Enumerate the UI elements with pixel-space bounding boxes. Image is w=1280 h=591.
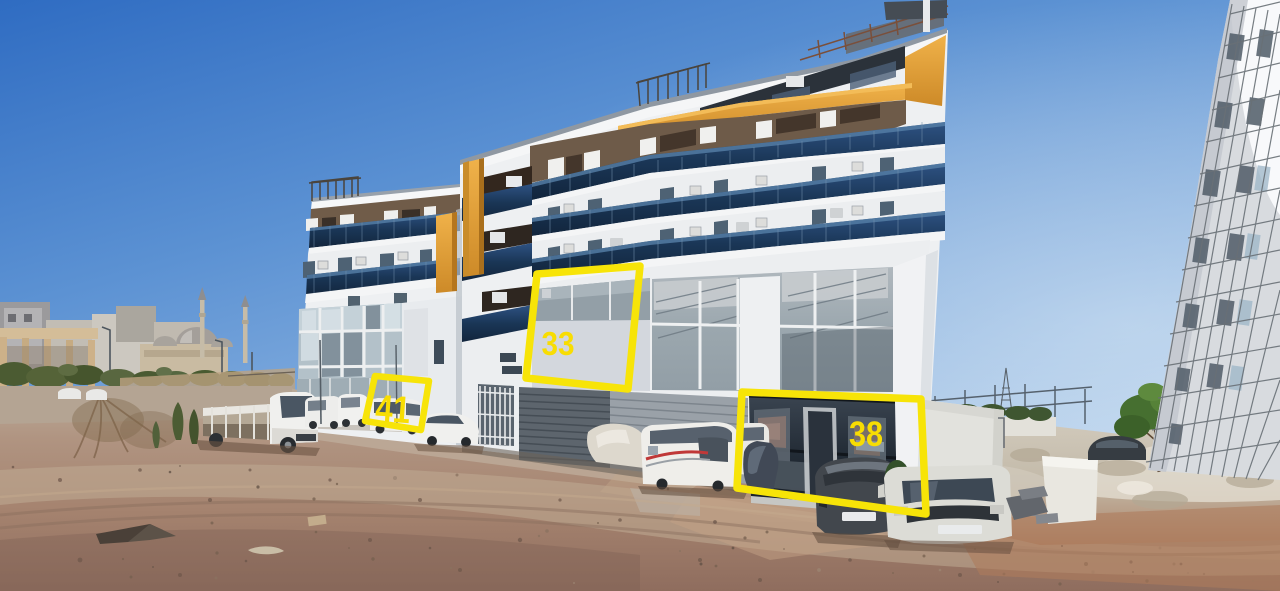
svg-text:33: 33: [542, 325, 575, 362]
svg-text:38: 38: [849, 415, 883, 454]
svg-text:41: 41: [374, 388, 412, 432]
